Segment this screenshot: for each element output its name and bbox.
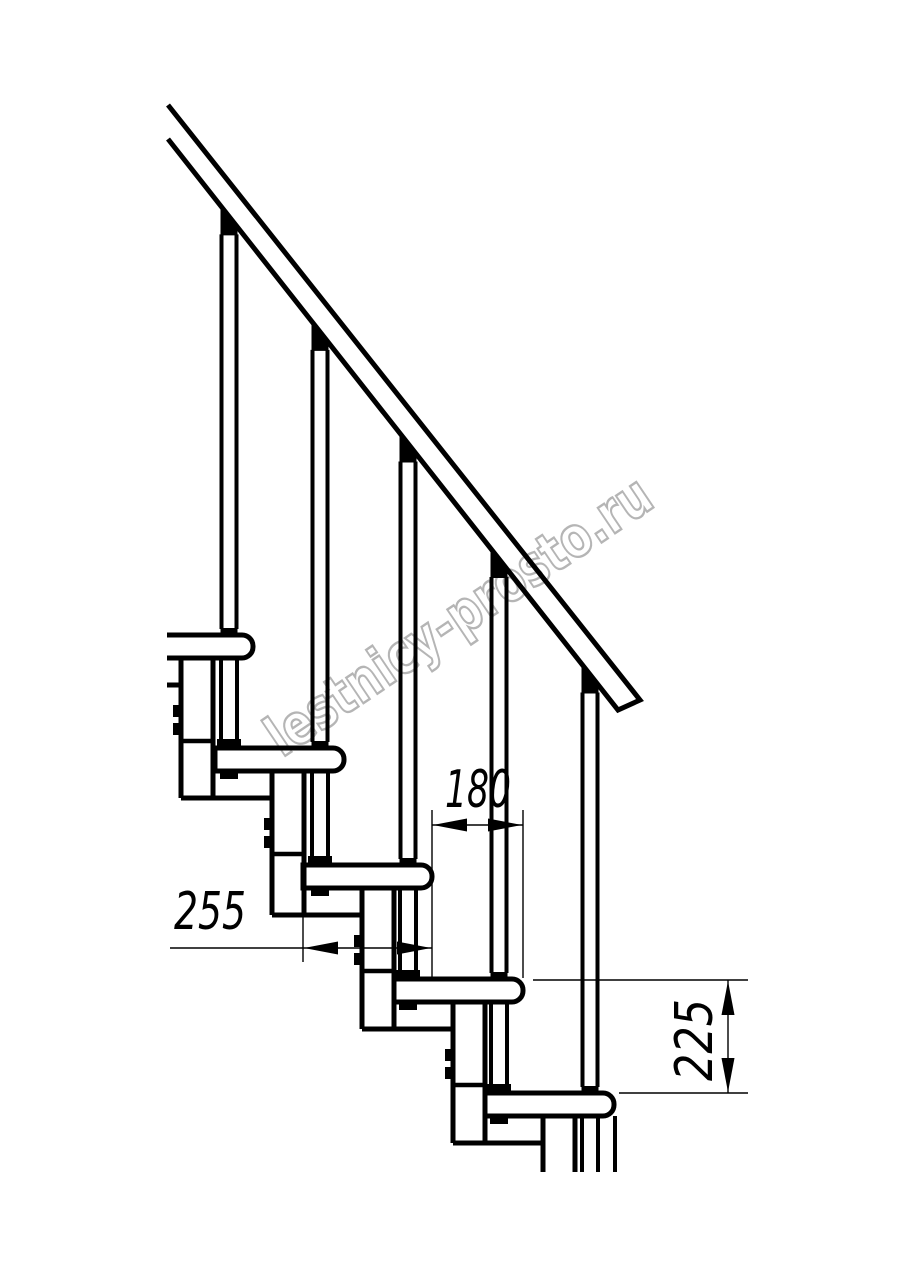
column-bolt xyxy=(354,953,364,965)
dim-255-arrow-left xyxy=(304,942,338,955)
column-bolt xyxy=(445,1067,455,1079)
nose-post-4 xyxy=(487,1002,511,1124)
baluster-5 xyxy=(582,667,599,1093)
baluster-1 xyxy=(221,209,238,635)
dimension-post-spacing: 180 xyxy=(432,760,523,978)
dimension-rise: 225 xyxy=(533,980,748,1093)
nose-post-2 xyxy=(308,771,332,896)
dim-180-arrow-left xyxy=(433,819,467,832)
treads-group xyxy=(167,635,614,1116)
column-bolt xyxy=(173,723,183,735)
tread-5 xyxy=(485,1093,614,1116)
baluster-base-connector xyxy=(312,741,329,748)
tread-1 xyxy=(167,635,253,658)
dim-225-label: 225 xyxy=(665,999,725,1081)
baluster-base-connector xyxy=(491,972,508,979)
tread-3 xyxy=(303,865,432,888)
dim-180-label: 180 xyxy=(445,760,511,820)
column-bolt xyxy=(354,935,364,947)
baluster-base-connector xyxy=(582,1086,599,1093)
nose-post-1 xyxy=(217,658,241,779)
column-bolt xyxy=(264,818,274,830)
stair-drawing: lestnicy-prosto.ru 255 180 225 xyxy=(0,0,914,1280)
column-bolt xyxy=(264,836,274,848)
column-bolt xyxy=(173,705,183,717)
dim-255-label: 255 xyxy=(174,882,246,942)
column-bolt xyxy=(445,1049,455,1061)
tread-4 xyxy=(394,979,523,1002)
baluster-base-connector xyxy=(221,628,238,635)
baluster-base-connector xyxy=(400,858,417,865)
